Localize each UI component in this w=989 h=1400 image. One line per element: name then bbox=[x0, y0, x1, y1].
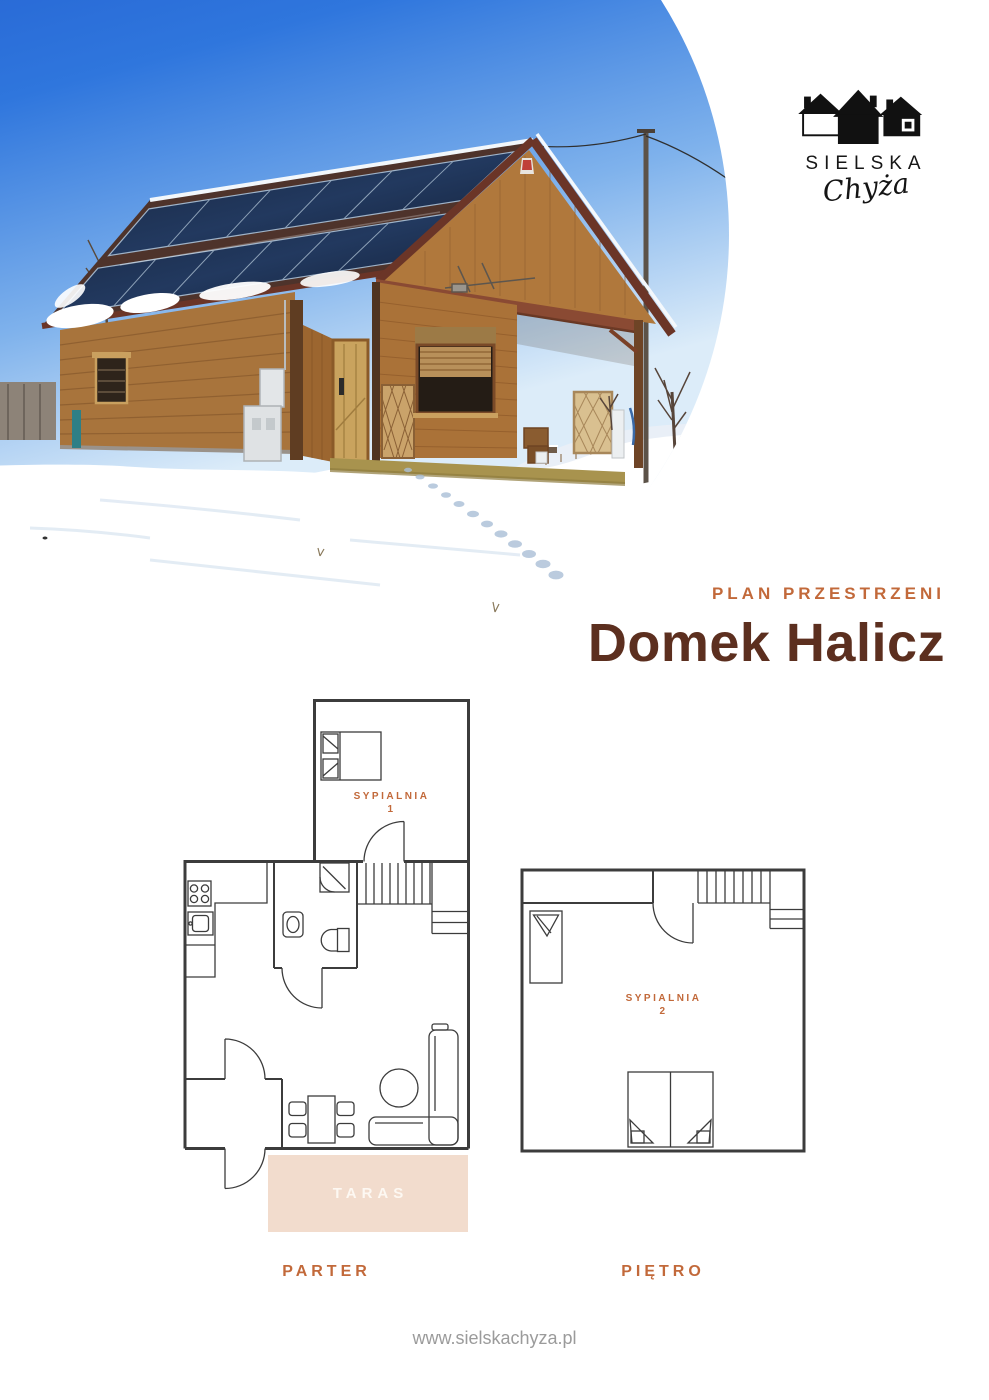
bird-speck bbox=[43, 537, 48, 540]
room-number: 2 bbox=[586, 1005, 741, 1018]
caption-parter: PARTER bbox=[183, 1263, 470, 1281]
page-title: Domek Halicz bbox=[588, 612, 945, 674]
fence-left bbox=[0, 382, 56, 440]
room-label-sypialnia-1: SYPIALNIA 1 bbox=[314, 790, 469, 816]
brochure-page: SIELSKA Chyża PLAN PRZESTRZENI Domek Hal… bbox=[0, 0, 989, 1400]
lattice-screen bbox=[382, 385, 414, 458]
floorplan-parter-drawing bbox=[183, 698, 470, 1233]
terrace-label: TARAS bbox=[328, 1185, 409, 1202]
porch-post-left bbox=[372, 282, 380, 462]
caption-pietro: PIĘTRO bbox=[520, 1263, 806, 1281]
room-name: SYPIALNIA bbox=[314, 790, 469, 803]
floorplan-pietro: SYPIALNIA 2 bbox=[520, 868, 806, 1153]
logo-houses-icon bbox=[797, 84, 935, 144]
side-window bbox=[92, 352, 131, 403]
porch-lamp bbox=[520, 158, 534, 174]
room-name: SYPIALNIA bbox=[586, 992, 741, 1005]
eyebrow: PLAN PRZESTRZENI bbox=[712, 584, 945, 604]
lattice-trellis bbox=[574, 392, 612, 453]
brand-logo: SIELSKA Chyża bbox=[793, 84, 939, 204]
room-label-sypialnia-2: SYPIALNIA 2 bbox=[586, 992, 741, 1018]
floorplan-parter: SYPIALNIA 1 TARAS bbox=[183, 698, 470, 1233]
terrace-area: TARAS bbox=[268, 1155, 468, 1232]
room-number: 1 bbox=[314, 803, 469, 816]
website-url: www.sielskachyza.pl bbox=[0, 1328, 989, 1349]
teal-pipe bbox=[72, 410, 81, 448]
entrance-door bbox=[333, 340, 368, 462]
front-window bbox=[413, 327, 498, 418]
porch-post-right bbox=[634, 320, 643, 468]
